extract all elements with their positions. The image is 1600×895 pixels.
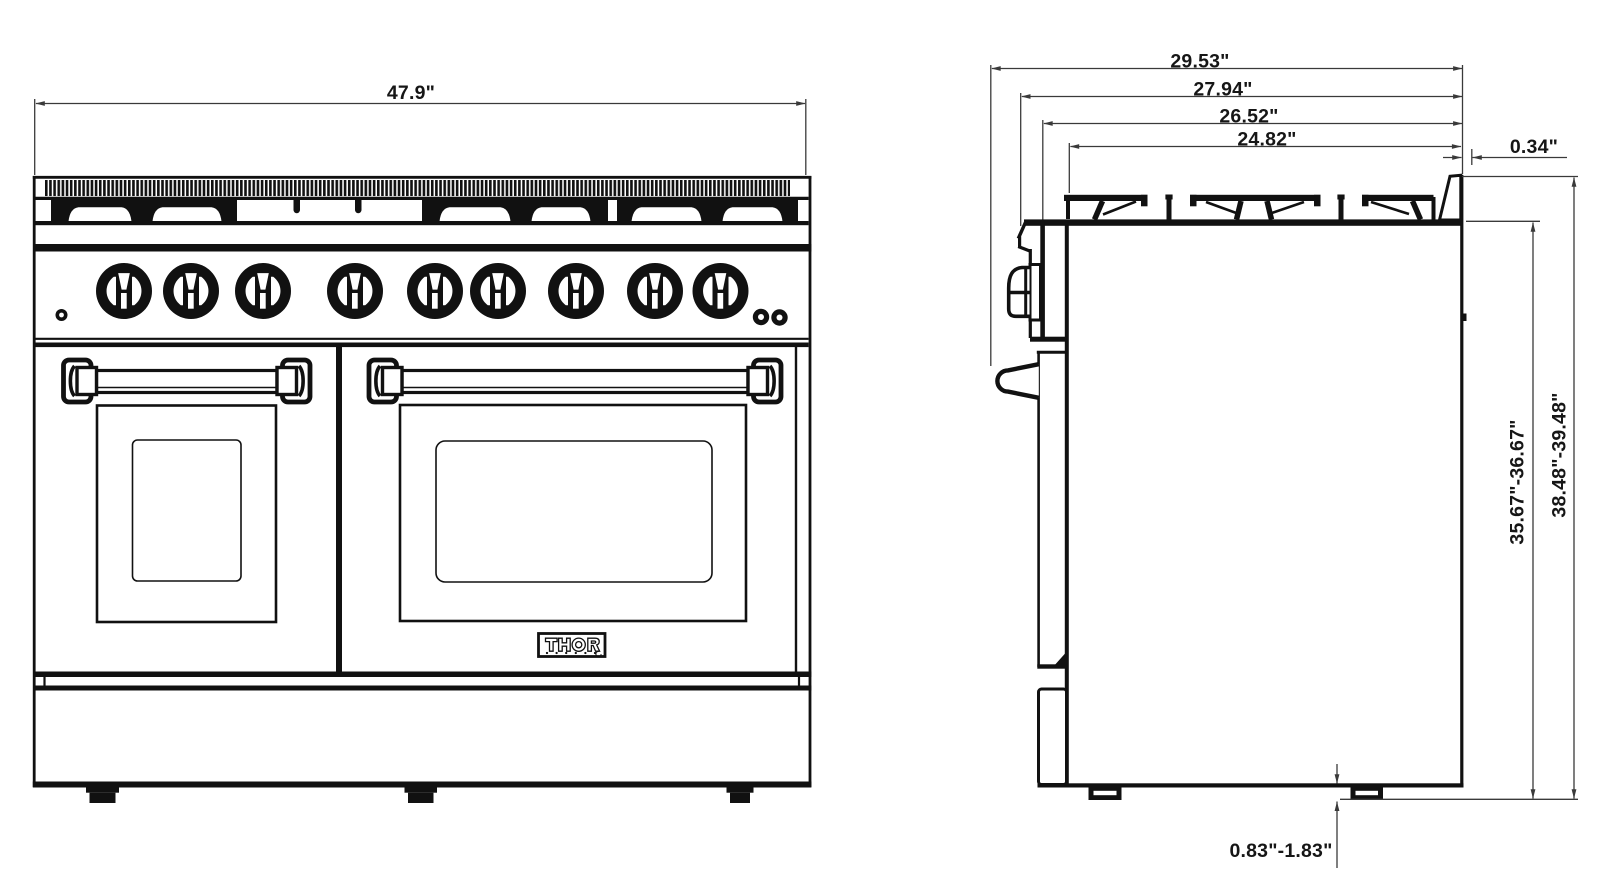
- svg-text:26.52": 26.52": [1219, 106, 1278, 128]
- svg-text:0.83"-1.83": 0.83"-1.83": [1229, 840, 1332, 862]
- svg-text:35.67"-36.67": 35.67"-36.67": [1507, 419, 1529, 544]
- svg-text:27.94": 27.94": [1193, 79, 1252, 101]
- svg-text:29.53": 29.53": [1170, 51, 1229, 73]
- svg-text:0.34": 0.34": [1510, 136, 1558, 158]
- svg-text:24.82": 24.82": [1237, 128, 1296, 150]
- svg-text:47.9": 47.9": [387, 82, 435, 104]
- svg-text:38.48"-39.48": 38.48"-39.48": [1549, 392, 1571, 517]
